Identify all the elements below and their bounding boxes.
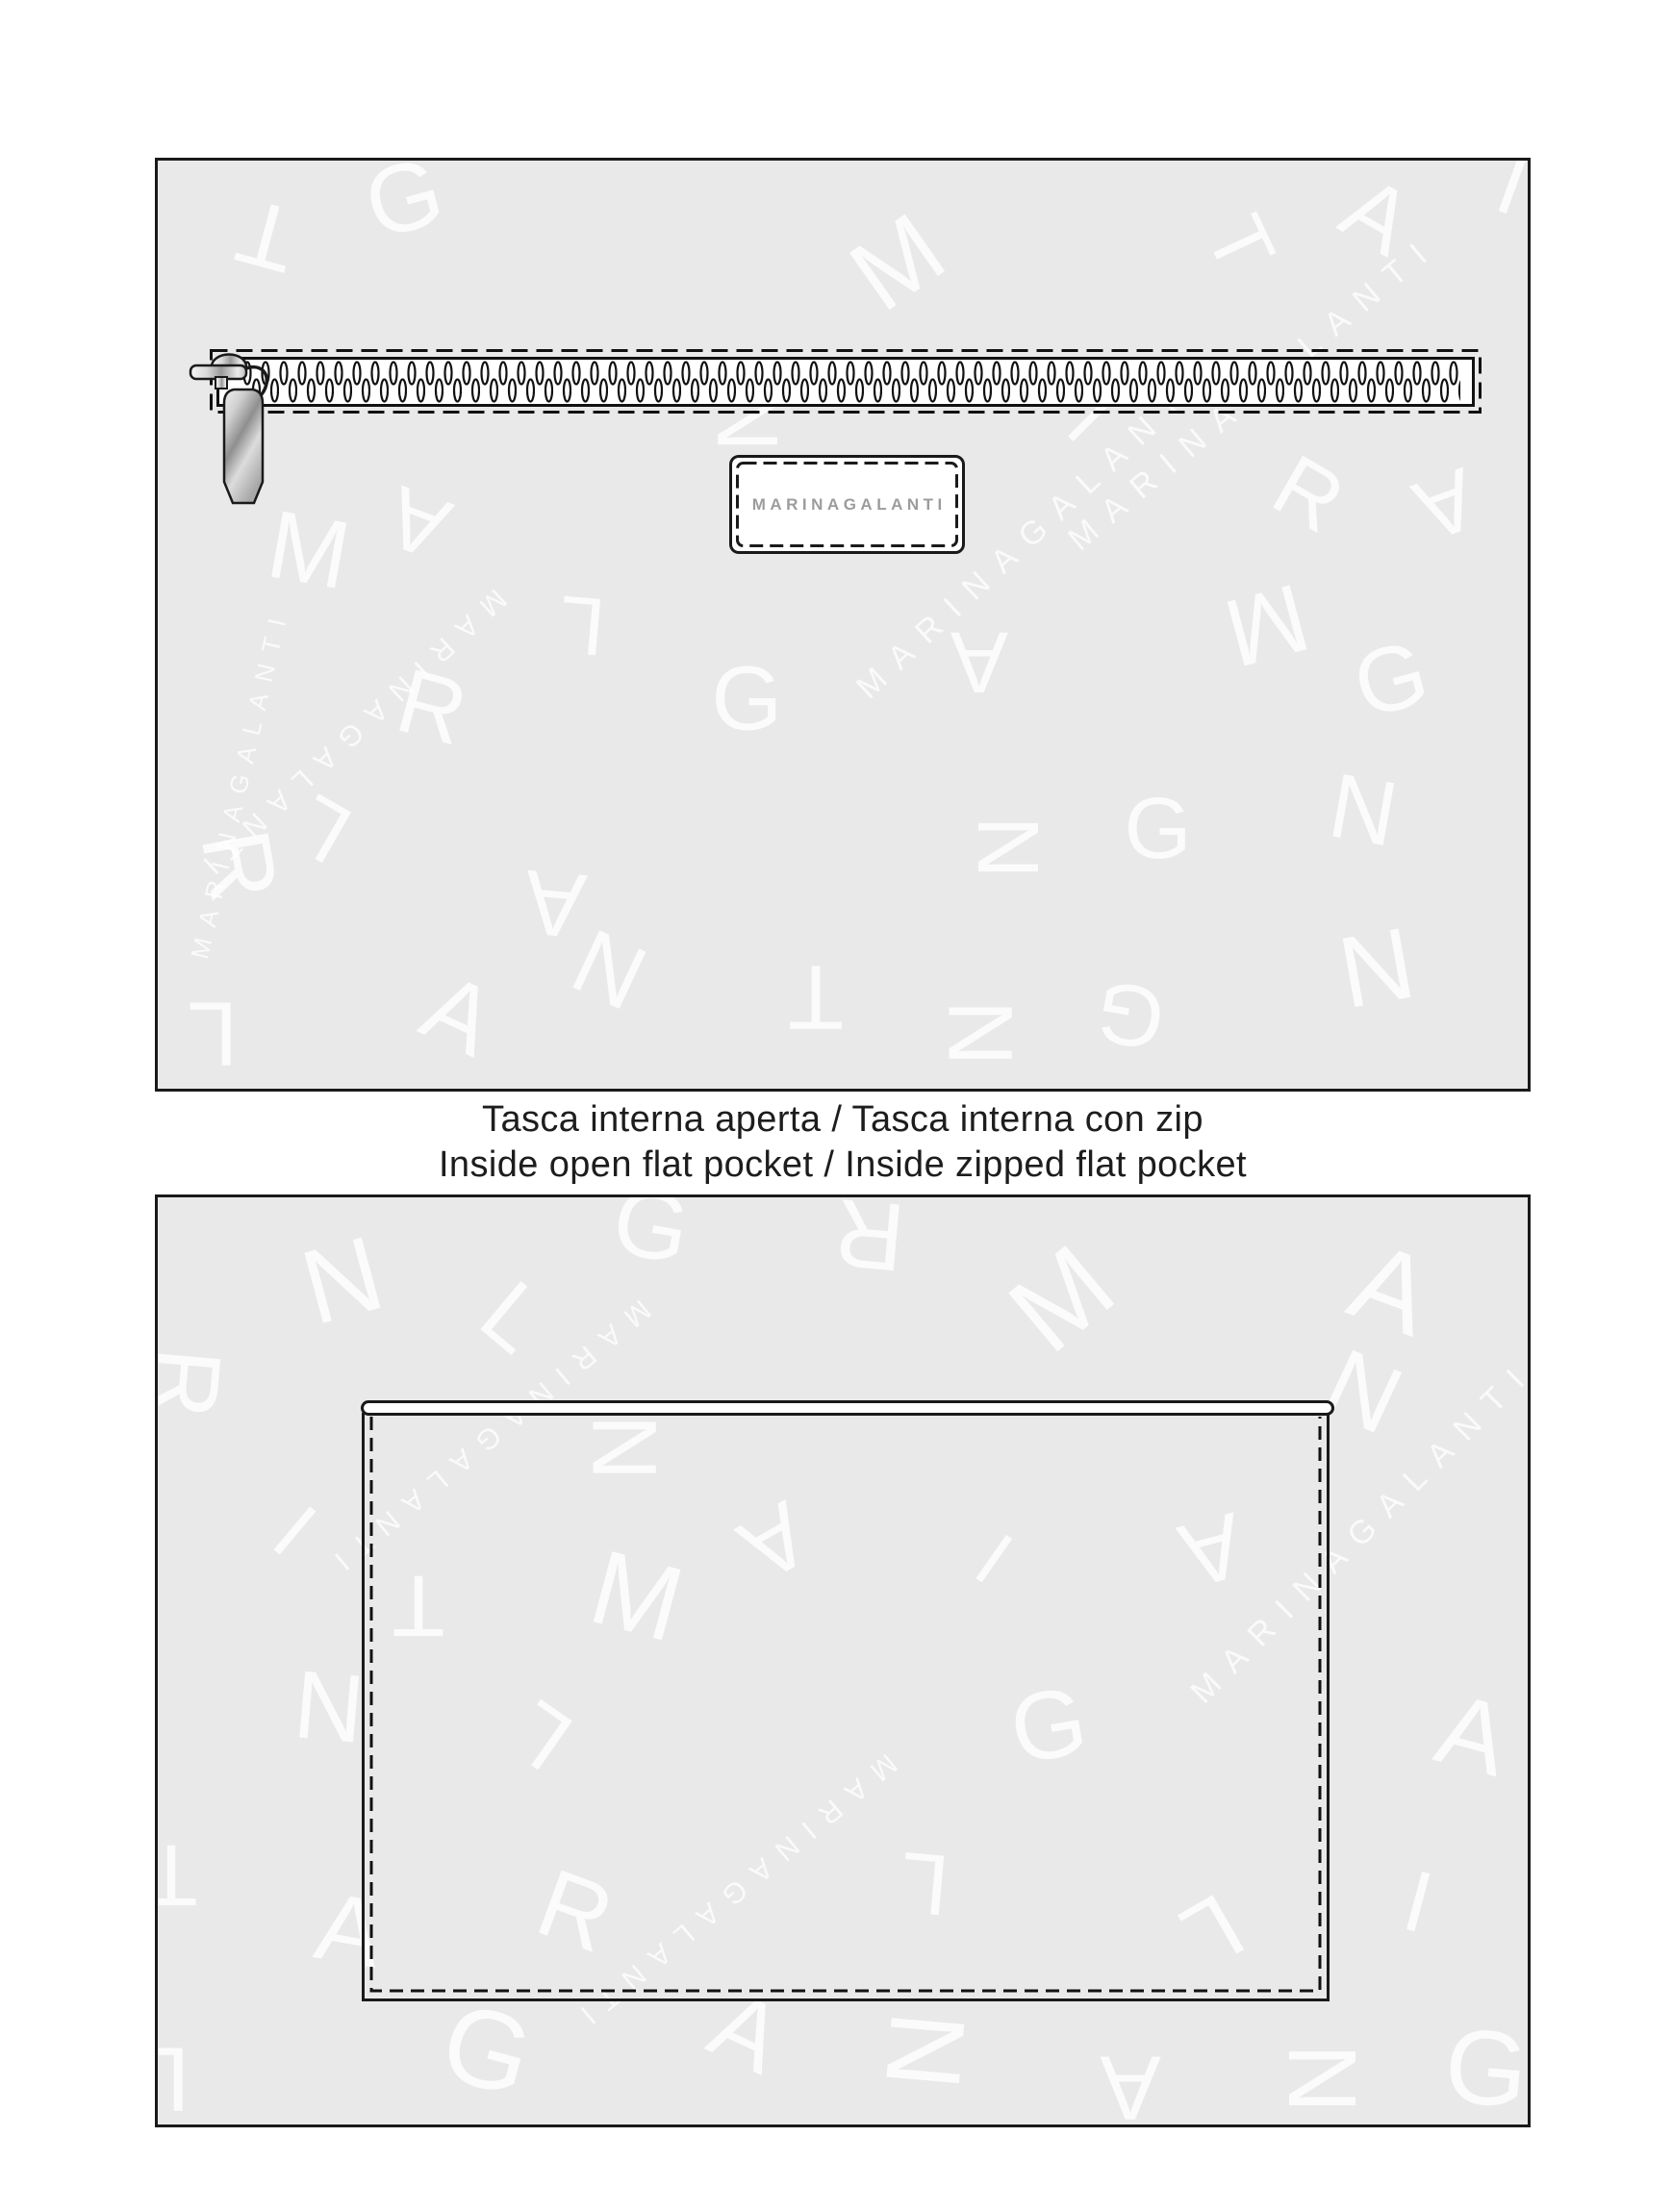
pattern-letter: N bbox=[1323, 760, 1404, 861]
pattern-letter: G bbox=[1441, 2013, 1531, 2125]
pattern-letter: G bbox=[1125, 786, 1192, 872]
pattern-letter: L bbox=[155, 2032, 190, 2124]
pattern-letter: G bbox=[431, 1986, 543, 2115]
pattern-letter: R bbox=[155, 1344, 236, 1421]
pattern-letter: T bbox=[1192, 204, 1287, 284]
pattern-letter: G bbox=[606, 1194, 697, 1279]
caption: Tasca interna aperta / Tasca interna con… bbox=[155, 1097, 1531, 1188]
pattern-letter: N bbox=[1332, 912, 1422, 1024]
pattern-letter: N bbox=[934, 1000, 1026, 1067]
pocket-top-hem bbox=[361, 1400, 1334, 1416]
pattern-letter: A bbox=[376, 472, 460, 573]
caption-english: Inside open flat pocket / Inside zipped … bbox=[155, 1143, 1531, 1188]
pattern-letter: M bbox=[991, 1227, 1132, 1371]
zipper-teeth bbox=[242, 361, 1460, 403]
zipper-slider-icon bbox=[187, 351, 283, 515]
brand-label-patch: MARINAGALANTI bbox=[729, 455, 965, 554]
pattern-letter: G bbox=[1345, 627, 1437, 734]
brand-label-text: MARINAGALANTI bbox=[747, 495, 947, 515]
pattern-letter: A bbox=[410, 957, 509, 1071]
techpack-page: GTMATLMANLRLRAAGIRAMGNNGANTNGNLMARINAGAL… bbox=[0, 0, 1672, 2212]
pattern-letter: G bbox=[356, 158, 453, 254]
zipped-pocket-panel: GTMATLMANLRLRAAGIRAMGNNGANTNGNLMARINAGAL… bbox=[155, 158, 1531, 1092]
pattern-letter: A bbox=[520, 855, 589, 951]
pattern-letter: R bbox=[1260, 441, 1357, 547]
pocket-stitch-outline bbox=[369, 1417, 1322, 1995]
pattern-letter: M bbox=[1216, 567, 1318, 681]
pattern-letter: L bbox=[1463, 158, 1531, 228]
pattern-letter: N bbox=[964, 817, 1051, 879]
pattern-letter: M bbox=[834, 197, 961, 328]
pattern-letter: N bbox=[291, 1656, 368, 1758]
pattern-letter: T bbox=[788, 950, 844, 1042]
pattern-letter: T bbox=[229, 184, 307, 287]
pattern-letter: R bbox=[831, 1194, 909, 1286]
pattern-letter: N bbox=[292, 1219, 393, 1342]
pattern-letter: N bbox=[1274, 2044, 1370, 2113]
pattern-letter: A bbox=[950, 618, 1008, 705]
pattern-letter: A bbox=[1100, 2042, 1160, 2127]
monogram-pattern: GTMATLMANLRLRAAGIRAMGNNGANTNGNLMARINAGAL… bbox=[158, 161, 1528, 1089]
pattern-letter: A bbox=[1428, 1677, 1519, 1793]
caption-italian: Tasca interna aperta / Tasca interna con… bbox=[155, 1097, 1531, 1143]
pattern-letter: G bbox=[711, 653, 782, 744]
pattern-letter: I bbox=[1395, 1857, 1440, 1947]
pattern-letter: N bbox=[869, 2008, 981, 2094]
open-pocket-panel: NLGRMANRITMNAIANLGATARLLIGANANGLMARINAGA… bbox=[155, 1194, 1531, 2127]
pattern-letter: G bbox=[1090, 966, 1172, 1063]
pattern-letter: L bbox=[465, 1267, 563, 1370]
pattern-letter: A bbox=[1404, 453, 1487, 554]
pattern-letter: T bbox=[155, 1831, 198, 1918]
pattern-letter: L bbox=[556, 582, 609, 667]
pattern-letter: L bbox=[188, 988, 239, 1079]
